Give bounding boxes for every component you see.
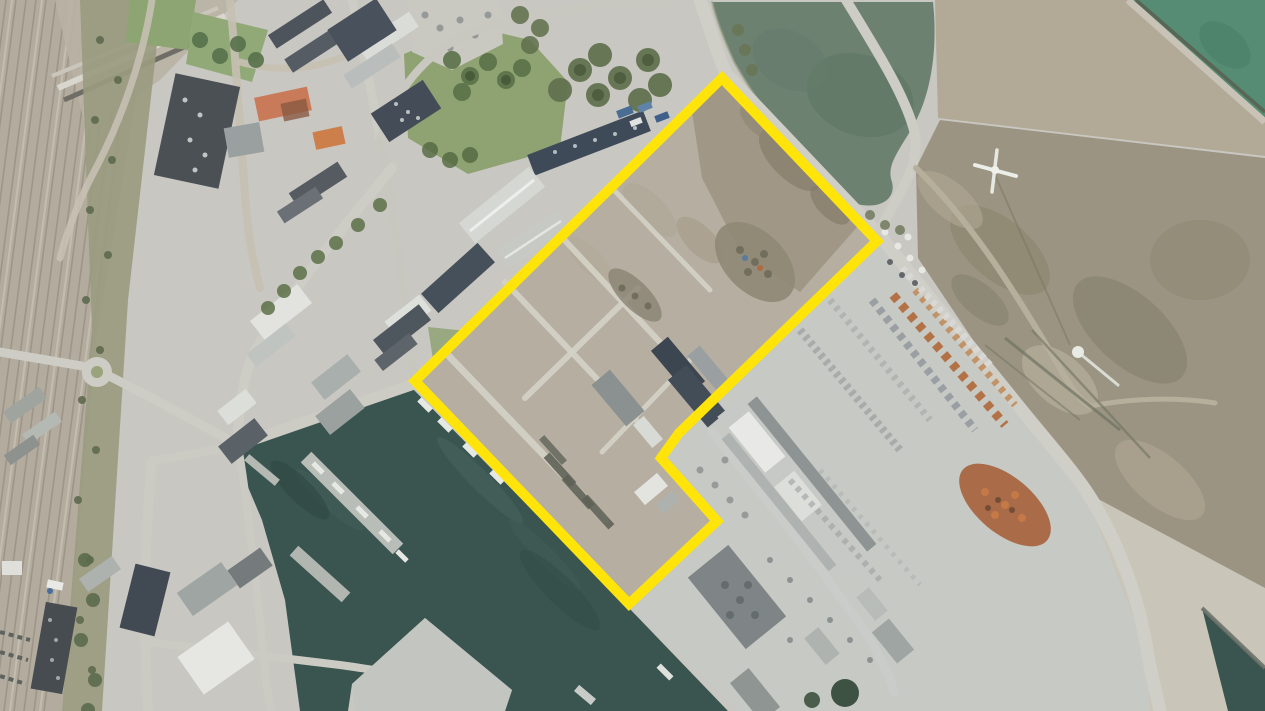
aerial-photo-stage <box>0 0 1265 711</box>
storage-tank-green <box>831 679 859 707</box>
wind-turbine-hub <box>1072 346 1084 358</box>
rubble-orange <box>757 265 763 271</box>
storage-tank-green <box>804 692 820 708</box>
wind-turbine-hub <box>991 166 999 174</box>
roundabout-island <box>91 366 103 378</box>
rubble-blue <box>742 255 748 261</box>
lawn <box>126 0 196 50</box>
building-white <box>2 561 22 575</box>
field-mottle <box>1150 220 1250 300</box>
aerial-photo-canvas <box>0 0 1265 711</box>
truck-cab <box>47 588 53 594</box>
building-gray <box>224 122 265 158</box>
